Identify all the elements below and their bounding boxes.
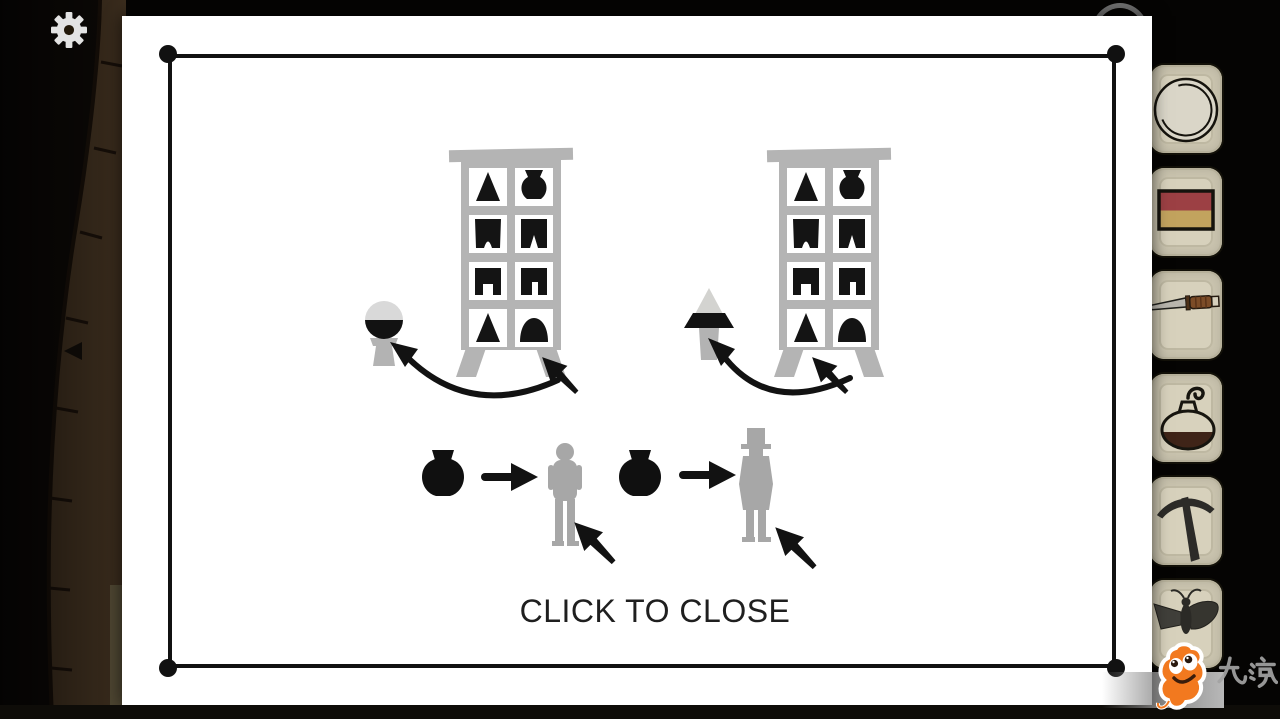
matchbox-icon: [1156, 188, 1218, 232]
click-to-close-label: CLICK TO CLOSE: [355, 593, 955, 630]
settings-gear-icon[interactable]: [51, 12, 87, 48]
game-screen: CLICK TO CLOSE: [0, 0, 1280, 719]
hint-note[interactable]: CLICK TO CLOSE: [122, 16, 1152, 706]
watermark-text: [1216, 654, 1278, 692]
screen-bottom-edge: [0, 705, 1280, 719]
back-arrow[interactable]: [60, 338, 86, 364]
knife-icon: [1146, 288, 1224, 322]
plate-icon: [1150, 74, 1222, 146]
flask-icon: [1152, 380, 1222, 456]
watermark-mascot-icon: [1152, 640, 1218, 718]
pickaxe-icon: [1154, 482, 1220, 566]
